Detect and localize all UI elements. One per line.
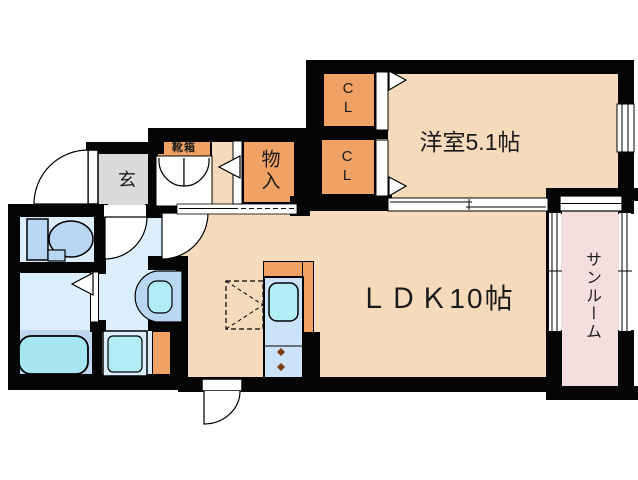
wall-hallband-jamb [290, 196, 310, 216]
shoe-box-label: 靴箱 [172, 139, 196, 155]
sunroom-label: サンルーム [579, 251, 603, 341]
kitchen-counter [263, 276, 304, 379]
wall-below-entrance [8, 204, 108, 217]
laundry-side-cabinet [152, 331, 172, 378]
back-door-swing [204, 391, 240, 424]
entrance-label: 玄 [118, 166, 136, 192]
front-door-swing [34, 150, 88, 204]
wall-hall-left [148, 128, 158, 208]
bathroom-floor [14, 270, 94, 334]
bedroom-label: 洋室5.1帖 [420, 123, 521, 157]
wall-bedroom-right-upper [618, 60, 634, 108]
wall-bath-right-low [92, 330, 102, 380]
floor-plan: 洋室5.1帖 ＬＤＫ10帖 サンルーム 玄 靴箱 物入 CL CL [0, 0, 638, 480]
closet-upper-label: CL [340, 80, 357, 118]
wall-toilet-bath-divider [8, 262, 106, 273]
wall-water-bottom [8, 374, 188, 390]
storage-label: 物入 [256, 149, 283, 193]
wall-ldk-bottom [178, 377, 548, 392]
wall-sunroom-right-top [618, 200, 634, 214]
wall-bedroom-bottom-left [306, 194, 392, 211]
washroom-floor [98, 213, 180, 333]
wall-bedroom-top [306, 60, 632, 74]
washroom-lower-floor [98, 330, 152, 378]
ldk-label: ＬＤＫ10帖 [359, 277, 514, 317]
bathtub-zone-floor [14, 330, 94, 378]
wall-toilet-right [94, 204, 106, 274]
front-door-leaf [88, 150, 98, 204]
wall-sunroom-right-low [618, 330, 634, 388]
toilet-room-floor [18, 213, 96, 265]
wall-kitchen-stub [303, 332, 320, 380]
wall-sunroom-bottom [546, 386, 638, 400]
closet-lower-label: CL [339, 148, 356, 186]
wall-left-exterior [8, 204, 20, 390]
wall-closet-divider [306, 126, 388, 139]
wall-washroom-door-jamb [145, 204, 180, 218]
wall-sunroom-left-low [546, 330, 562, 388]
